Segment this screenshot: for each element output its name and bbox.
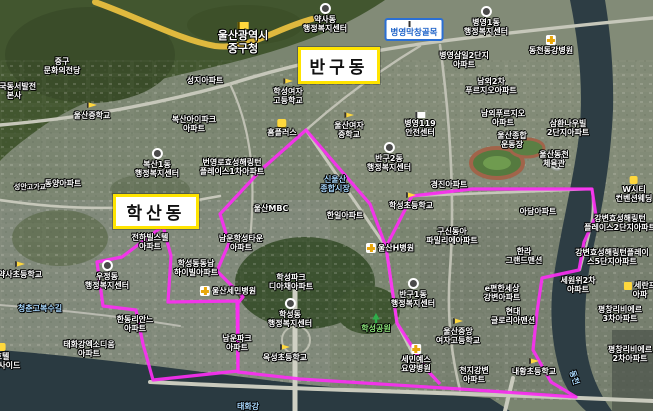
map-label: 울산광역시중구청	[218, 22, 269, 56]
map-label-line: 병영막창골목	[391, 28, 438, 38]
map-label: 번영로효성해링턴플레이스1차아파트	[200, 158, 264, 177]
map-label-line: 행정복지센터	[268, 319, 312, 328]
map-label-line: 아파트	[560, 285, 595, 294]
map-label-line: 번영로효성해링턴	[200, 158, 264, 167]
map-label-line: 성지아파트	[187, 76, 224, 85]
hospital-icon	[200, 286, 210, 296]
map-label: 강변효성해링턴플레이스5단지아파트	[575, 248, 649, 267]
map-label-line: 행정복지센터	[135, 169, 179, 178]
map-label: 병영119안전센터	[404, 112, 435, 138]
map-label: 삼환나우빌2단지아파트	[547, 119, 589, 138]
map-label-line: 체육관	[539, 159, 568, 168]
map-label-line: W시티	[616, 185, 653, 194]
map-label: 학성동동남하이빌아파트	[174, 259, 218, 278]
district-box-label: 반구동	[310, 53, 369, 78]
map-label-line: 그랜드맨션	[506, 256, 543, 265]
map-label: 남외푸르지오아파트	[481, 109, 525, 128]
map-label: 학성동행정복지센터	[268, 298, 312, 329]
map-label-line: 아파트	[459, 375, 488, 384]
map-label-line: 플레이스2단지아파트	[584, 223, 653, 232]
map-label-line: 약사초등학교	[0, 270, 42, 279]
gov-icon	[237, 22, 248, 29]
map-label-line: 울산광역시	[218, 30, 269, 43]
map-label: 한일아파트	[327, 211, 364, 220]
map-label-line: 신울산	[320, 175, 349, 184]
map-label-line: e편한세상	[484, 284, 521, 293]
map-label-line: 남외푸르지오	[481, 109, 525, 118]
map-label: 울산중학교	[74, 102, 111, 120]
school-icon	[283, 78, 293, 86]
hospital-icon	[546, 35, 556, 45]
map-label: 성지아파트	[187, 76, 224, 85]
map-label-line: 푸르지오아파트	[465, 86, 517, 95]
map-label: 울산중앙여자고등학교	[436, 318, 480, 346]
map-label-line: 삼환나우빌	[547, 119, 589, 128]
map-label: 세민예스요양병원	[401, 344, 430, 374]
map-label-line: 3차아파트	[598, 314, 642, 323]
map-label-line: 고등학교	[273, 96, 302, 105]
map-label-line: 안전센터	[404, 128, 435, 137]
map-label-line: 태화강	[237, 402, 259, 411]
satellite-map[interactable]: 중구문화의전당한국동서발전본사울산중학교성지아파트복산아이파크아파트울산광역시중…	[0, 0, 653, 411]
map-label: 평창리비에르3차아파트	[598, 305, 642, 324]
map-label-line: 강변효성해링턴플레이	[575, 248, 649, 257]
school-icon	[453, 318, 463, 326]
map-label-line: 동천	[567, 369, 581, 386]
map-label-line: 남외2차	[465, 77, 517, 86]
map-label-line: 아파트	[222, 343, 251, 352]
map-label-line: 성안고가교	[14, 183, 46, 191]
hospital-icon	[411, 344, 421, 354]
shop-icon	[624, 282, 632, 290]
map-label-line: 학성여자	[273, 87, 302, 96]
map-label-line: 평창리비에르	[598, 305, 642, 314]
map-label: 반구1동행정복지센터	[391, 278, 435, 309]
map-label: 병영삼일2단지아파트	[439, 51, 489, 70]
map-label-line: 동천동강병원	[529, 46, 573, 55]
map-label-line: 구신동아	[426, 227, 478, 236]
map-label: 복산1동행정복지센터	[135, 148, 179, 179]
map-label: 신울산종합시장	[320, 175, 349, 194]
map-label-line: 아담아파트	[520, 207, 557, 216]
map-label-line: 2단지아파트	[547, 128, 589, 137]
map-label: 울산MBC	[254, 204, 289, 213]
map-label: e편한세상강변아파트	[484, 284, 521, 303]
cart-icon	[277, 119, 286, 127]
map-label: 울산세민병원	[200, 286, 256, 296]
map-label-line: 세원위2차	[560, 276, 595, 285]
office-icon	[319, 3, 330, 14]
map-label-line: 아파트	[132, 242, 169, 251]
map-label: 구신동아파밀리에아파트	[426, 227, 478, 246]
map-label-line: 평창리비에르	[608, 345, 652, 354]
map-label-line: 울산여자	[334, 121, 363, 130]
map-label-line: 문화의전당	[44, 66, 81, 75]
map-label: 동양아파트	[45, 179, 82, 188]
map-label: 남운파크아파트	[222, 334, 251, 353]
map-label-line: 아파트	[172, 124, 216, 133]
map-label-line: 행정복지센터	[367, 163, 411, 172]
tree-icon	[371, 313, 381, 323]
map-label-line: 학성초등학교	[389, 201, 433, 210]
map-label-line: 세민예스	[401, 355, 430, 364]
map-label-line: 약사동	[303, 15, 347, 24]
map-label-line: 중학교	[334, 130, 363, 139]
map-label-line: 울산세민병원	[200, 286, 256, 296]
map-label-line: 아파트	[481, 118, 525, 127]
map-label-line: 행정복지센터	[464, 27, 508, 36]
map-label-line: 울산종합	[497, 131, 526, 140]
map-label: 울산동천체육관	[539, 150, 568, 169]
map-label-line: 한라	[506, 247, 543, 256]
map-label: 내황초등학교	[512, 358, 556, 376]
map-label: 한국동서발전본사	[0, 82, 36, 101]
map-label-line: 한일아파트	[327, 211, 364, 220]
map-label-line: 천지강변	[459, 366, 488, 375]
map-label-line: 아파트	[219, 243, 263, 252]
map-label: 병영막창골목	[385, 18, 444, 41]
map-label: 옥성초등학교	[263, 344, 307, 362]
map-label-line: 반구2동	[367, 154, 411, 163]
map-label: 세란프아파	[624, 281, 653, 300]
office-icon	[101, 260, 112, 271]
map-label-line: 울산MBC	[254, 204, 289, 213]
map-label-line: 학성동	[268, 310, 312, 319]
map-label-line: 학성동동남	[174, 259, 218, 268]
district-box-label: 학산동	[127, 199, 186, 224]
map-label-line: 강변효성해링턴	[584, 214, 653, 223]
map-label: 태화강엑소디움아파트	[63, 340, 115, 359]
map-label-line: 플레이스1차아파트	[200, 167, 264, 176]
map-label: 한동리안느아파트	[117, 315, 154, 334]
map-label: W시티컨벤션웨딩	[616, 176, 653, 204]
map-label: 울산H병원	[366, 243, 414, 253]
map-label: 평창리비에르2차아파트	[608, 345, 652, 364]
map-label-line: 글로리아맨션	[491, 316, 535, 325]
map-label: 강변효성해링턴플레이스2단지아파트	[584, 214, 653, 233]
map-label-line: 행정복지센터	[391, 299, 435, 308]
map-label: 전하빌스텔아파트	[132, 233, 169, 252]
map-label: 우정동행정복지센터	[85, 260, 129, 291]
map-label: 경진아파트	[431, 180, 468, 189]
school-icon	[344, 112, 354, 120]
bangu-dong-box: 반구동	[298, 47, 380, 84]
map-label: 현대글로리아맨션	[491, 307, 535, 326]
map-label: 성안고가교	[14, 183, 46, 191]
map-label-line: 아파	[624, 290, 653, 299]
map-label: 반구2동행정복지센터	[367, 142, 411, 173]
map-label: 천지강변아파트	[459, 366, 488, 385]
map-label: 태화강	[237, 402, 259, 411]
map-label-line: 하이빌아파트	[174, 268, 218, 277]
map-label-line: 학성파크	[269, 273, 313, 282]
hotel-icon	[630, 176, 638, 184]
map-label-line: 운동장	[497, 140, 526, 149]
map-label: 세원위2차아파트	[560, 276, 595, 295]
map-label-line: 병영1동	[464, 18, 508, 27]
map-label-line: 한동리안느	[117, 315, 154, 324]
map-label-line: 컨벤션웨딩	[616, 194, 653, 203]
map-label: 울산여자중학교	[334, 112, 363, 140]
map-label-line: 2차아파트	[608, 354, 652, 363]
map-label-line: 아파트	[63, 349, 115, 358]
map-label: 약사초등학교	[0, 261, 42, 279]
map-label: 울산종합운동장	[497, 131, 526, 150]
map-label-line: 호텔	[0, 352, 20, 361]
map-label-line: 현대	[491, 307, 535, 316]
map-label-line: 병영119	[404, 119, 435, 128]
map-label-line: 아파트	[439, 60, 489, 69]
office-icon	[407, 278, 418, 289]
map-label-line: 반구1동	[391, 290, 435, 299]
map-label: 동천동강병원	[529, 35, 573, 55]
map-label: 남외2차푸르지오아파트	[465, 77, 517, 96]
map-label: 중구문화의전당	[44, 57, 81, 76]
flag-icon	[415, 112, 425, 118]
map-label-line: 울산중앙	[436, 327, 480, 336]
map-label: 약사동행정복지센터	[303, 3, 347, 34]
hospital-icon	[366, 243, 376, 253]
map-label-line: 복산아이파크	[172, 115, 216, 124]
map-label-line: 복산1동	[135, 160, 179, 169]
flag-icon	[409, 21, 419, 27]
map-label-line: 동양아파트	[45, 179, 82, 188]
school-icon	[280, 344, 290, 352]
map-label-line: 울산H병원	[366, 243, 414, 253]
map-label-line: 전하빌스텔	[132, 233, 169, 242]
map-label-line: 종합시장	[320, 184, 349, 193]
map-label: 학성공원	[361, 313, 390, 333]
map-label-line: 경진아파트	[431, 180, 468, 189]
map-label-line: 남운학성타운	[219, 234, 263, 243]
map-label-line: 행정복지센터	[303, 24, 347, 33]
map-label-line: 요양병원	[401, 364, 430, 373]
map-label-line: 학성공원	[361, 324, 390, 333]
office-icon	[151, 148, 162, 159]
map-label: 학성초등학교	[389, 192, 433, 210]
school-icon	[87, 102, 97, 110]
map-label: 한라그랜드맨션	[506, 247, 543, 266]
map-label-line: 홈플러스	[267, 128, 296, 137]
map-label-line: 옥성초등학교	[263, 353, 307, 362]
school-icon	[15, 261, 25, 269]
map-label-line: 내황초등학교	[512, 367, 556, 376]
map-label-line: 여자고등학교	[436, 336, 480, 345]
map-label-line: 병영삼일2단지	[439, 51, 489, 60]
map-label-line: 아파트	[117, 324, 154, 333]
map-label-line: 리버사이드	[0, 361, 20, 370]
map-label-line: 태화강엑소디움	[63, 340, 115, 349]
map-label: 청춘고복수길	[18, 304, 62, 313]
map-label-line: 본사	[0, 91, 36, 100]
map-label: 호텔리버사이드	[0, 343, 20, 371]
map-label: 남운학성타운아파트	[219, 234, 263, 253]
map-label-line: 디아채아파트	[269, 282, 313, 291]
map-label-line: 울산동천	[539, 150, 568, 159]
school-icon	[406, 192, 416, 200]
map-label-line: 우정동	[85, 272, 129, 281]
map-label: 동천	[567, 369, 581, 386]
map-label: 복산아이파크아파트	[172, 115, 216, 134]
map-label-line: 세란프	[624, 281, 653, 290]
map-label: 홈플러스	[267, 119, 296, 137]
map-label-line: 울산중학교	[74, 111, 111, 120]
haksan-dong-box: 학산동	[113, 194, 199, 229]
map-label-line: 스5단지아파트	[575, 257, 649, 266]
map-label-line: 행정복지센터	[85, 281, 129, 290]
map-label-line: 중구청	[218, 43, 269, 56]
map-label: 아담아파트	[520, 207, 557, 216]
map-label: 학성파크디아채아파트	[269, 273, 313, 292]
map-label-line: 청춘고복수길	[18, 304, 62, 313]
map-label-line: 강변아파트	[484, 293, 521, 302]
map-label: 병영1동행정복지센터	[464, 6, 508, 37]
office-icon	[383, 142, 394, 153]
map-label-line: 파밀리에아파트	[426, 236, 478, 245]
map-label-line: 한국동서발전	[0, 82, 36, 91]
office-icon	[284, 298, 295, 309]
school-icon	[529, 358, 539, 366]
office-icon	[480, 6, 491, 17]
map-label-line: 중구	[44, 57, 81, 66]
hotel-icon	[0, 343, 6, 351]
map-label-line: 남운파크	[222, 334, 251, 343]
